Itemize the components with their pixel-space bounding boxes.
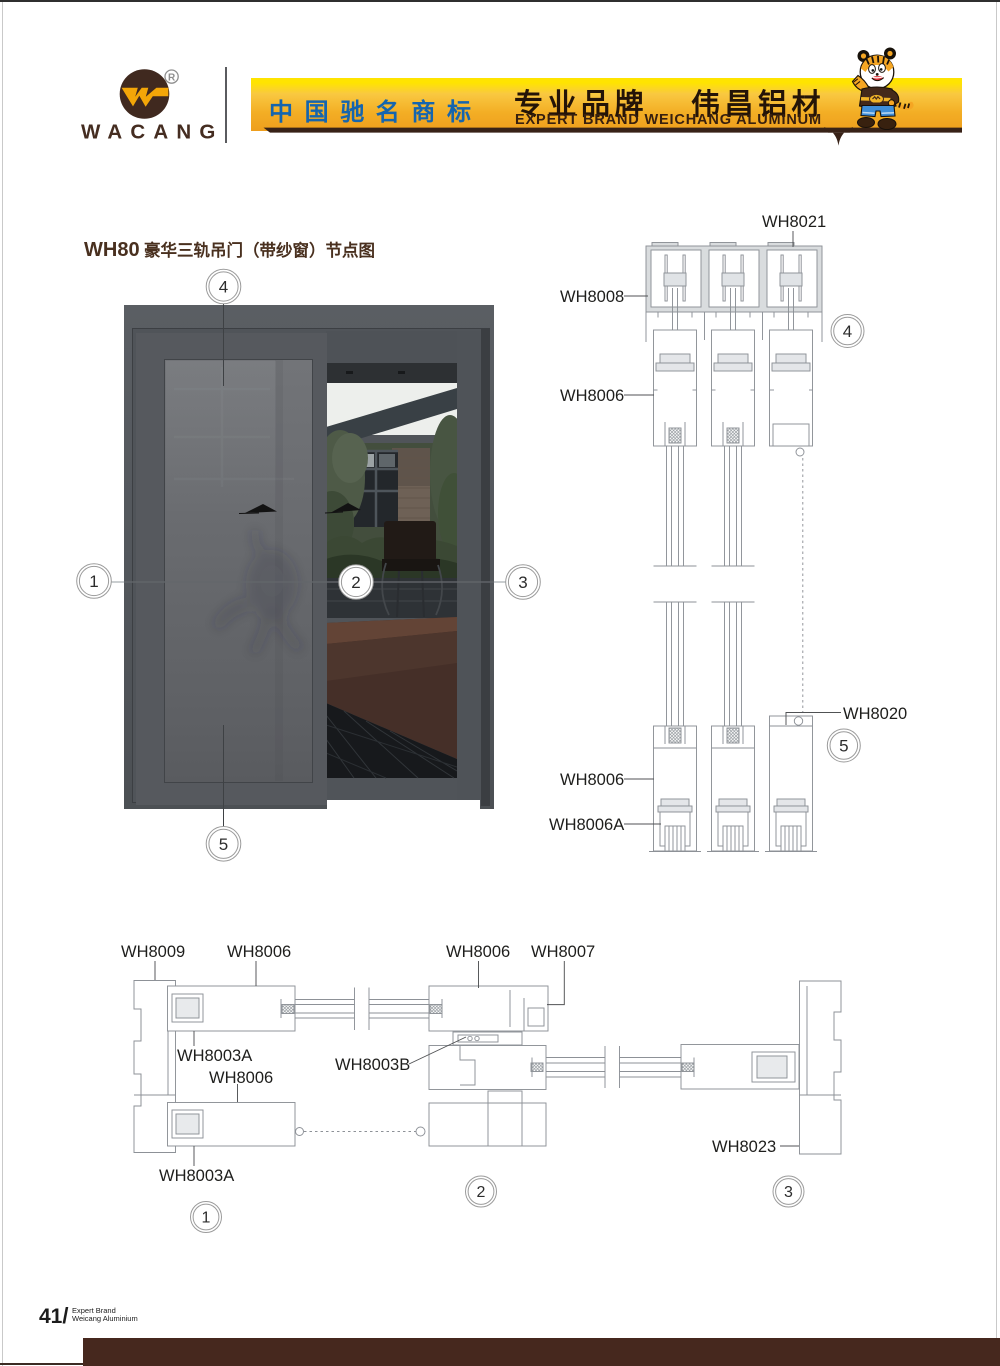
svg-text:5: 5 bbox=[839, 737, 848, 756]
svg-text:WH8006: WH8006 bbox=[446, 943, 510, 961]
svg-text:WH8006: WH8006 bbox=[560, 771, 624, 789]
svg-text:WH8007: WH8007 bbox=[531, 943, 595, 961]
svg-text:WH8006: WH8006 bbox=[209, 1069, 273, 1087]
svg-text:3: 3 bbox=[784, 1184, 793, 1201]
svg-text:WH8009: WH8009 bbox=[121, 943, 185, 961]
svg-text:3: 3 bbox=[518, 573, 527, 592]
svg-text:WH8003A: WH8003A bbox=[159, 1167, 234, 1185]
svg-text:WH8003B: WH8003B bbox=[335, 1056, 410, 1074]
svg-text:2: 2 bbox=[477, 1184, 486, 1201]
svg-text:WH8008: WH8008 bbox=[560, 288, 624, 306]
svg-text:1: 1 bbox=[89, 572, 98, 591]
svg-text:WH8006: WH8006 bbox=[560, 387, 624, 405]
svg-text:WH8020: WH8020 bbox=[843, 705, 907, 723]
svg-text:4: 4 bbox=[219, 278, 228, 297]
svg-text:WH8023: WH8023 bbox=[712, 1138, 776, 1156]
svg-text:2: 2 bbox=[351, 573, 360, 592]
svg-text:WH8006: WH8006 bbox=[227, 943, 291, 961]
svg-text:4: 4 bbox=[843, 322, 852, 341]
svg-text:WH8003A: WH8003A bbox=[177, 1047, 252, 1065]
svg-text:5: 5 bbox=[219, 835, 228, 854]
svg-text:WH8006A: WH8006A bbox=[549, 816, 624, 834]
svg-text:WH8021: WH8021 bbox=[762, 213, 826, 231]
svg-text:1: 1 bbox=[202, 1210, 211, 1227]
